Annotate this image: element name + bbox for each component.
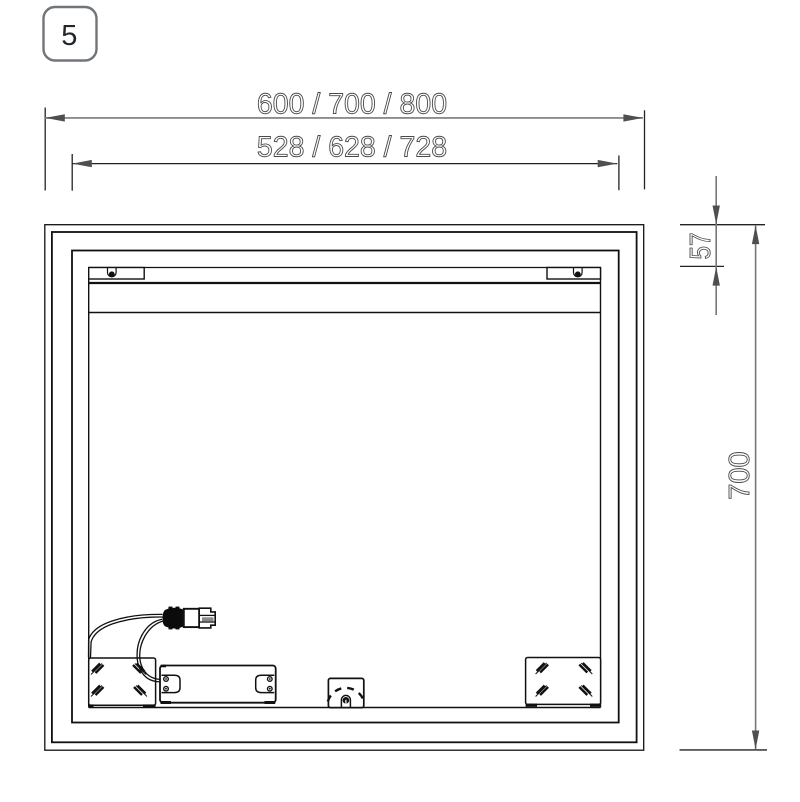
svg-text:528 / 628 / 728: 528 / 628 / 728 [257,132,447,164]
svg-text:700: 700 [724,451,756,499]
svg-text:57: 57 [685,233,717,260]
svg-text:5: 5 [61,20,77,52]
svg-text:600 / 700 / 800: 600 / 700 / 800 [257,89,447,121]
